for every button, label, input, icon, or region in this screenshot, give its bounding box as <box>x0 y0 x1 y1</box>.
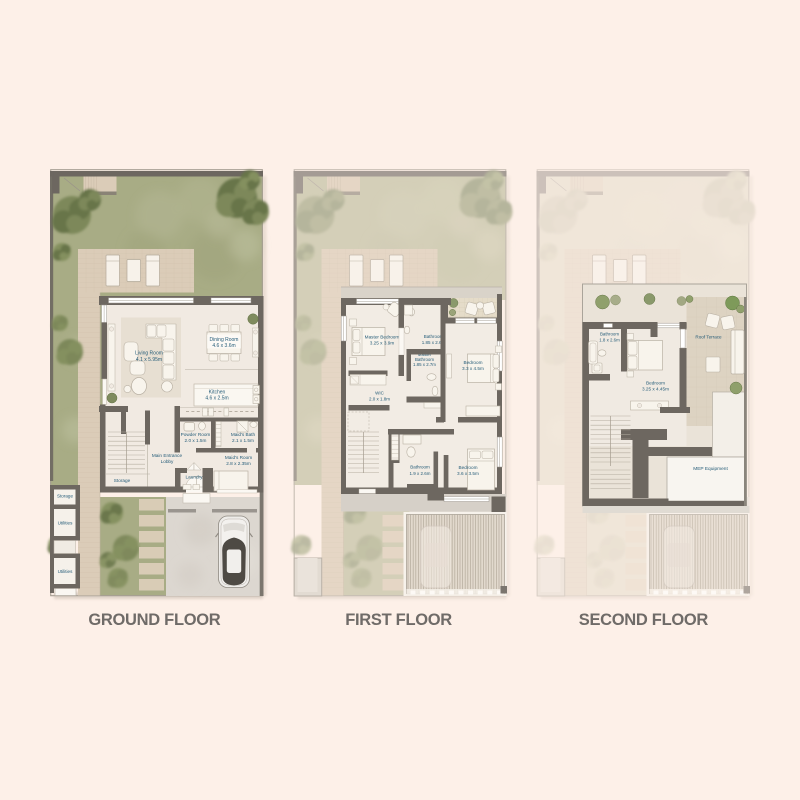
svg-text:Utilities: Utilities <box>58 521 74 526</box>
svg-text:Bathroom: Bathroom <box>600 332 619 337</box>
svg-text:2.0 x 1.8m: 2.0 x 1.8m <box>369 397 390 402</box>
svg-text:Laundry: Laundry <box>186 475 204 480</box>
svg-text:2.8 x 2.35m: 2.8 x 2.35m <box>226 461 251 466</box>
svg-text:Storage: Storage <box>57 494 74 499</box>
svg-text:MEP Equipment: MEP Equipment <box>693 466 728 472</box>
svg-text:Powder Room: Powder Room <box>181 432 211 437</box>
svg-text:4.6 x 2.5m: 4.6 x 2.5m <box>205 396 228 402</box>
svg-text:4.1 x 5.95m: 4.1 x 5.95m <box>136 357 162 363</box>
svg-text:Roof Terrace: Roof Terrace <box>695 335 722 340</box>
svg-text:WIC: WIC <box>375 391 384 396</box>
svg-text:Bathroom: Bathroom <box>410 465 430 470</box>
svg-text:1.8 x 2.6m: 1.8 x 2.6m <box>599 338 620 343</box>
svg-text:FIRST FLOOR: FIRST FLOOR <box>345 611 452 629</box>
svg-text:Utilities: Utilities <box>58 569 74 574</box>
svg-text:3.25 x 3.9m: 3.25 x 3.9m <box>370 341 395 346</box>
svg-text:GROUND FLOOR: GROUND FLOOR <box>88 611 220 629</box>
svg-text:3.3 x 4.5m: 3.3 x 4.5m <box>462 366 484 371</box>
svg-text:3.6 x 3.5m: 3.6 x 3.5m <box>457 471 479 476</box>
svg-text:1.9 x 2.6m: 1.9 x 2.6m <box>409 471 430 476</box>
svg-text:4.6 x 3.6m: 4.6 x 3.6m <box>212 343 235 349</box>
svg-text:Main Entrance: Main Entrance <box>152 453 183 458</box>
svg-text:Maid's Room: Maid's Room <box>225 455 252 460</box>
svg-text:1.85 x 2.7m: 1.85 x 2.7m <box>413 362 436 367</box>
svg-text:Storage: Storage <box>114 478 131 483</box>
svg-text:Bedroom: Bedroom <box>646 381 665 386</box>
svg-text:3.25 x 4.45m: 3.25 x 4.45m <box>642 387 669 392</box>
svg-text:SECOND FLOOR: SECOND FLOOR <box>579 611 709 629</box>
svg-text:Lobby: Lobby <box>161 459 174 464</box>
svg-text:Bedroom: Bedroom <box>458 465 477 470</box>
svg-text:Maid's Bath: Maid's Bath <box>231 432 256 437</box>
svg-text:Bedroom: Bedroom <box>463 360 482 365</box>
svg-text:2.1 x 1.5m: 2.1 x 1.5m <box>232 438 254 443</box>
svg-text:Master Bedroom: Master Bedroom <box>365 335 400 340</box>
svg-text:2.0 x 1.5m: 2.0 x 1.5m <box>185 438 207 443</box>
svg-text:Living Room: Living Room <box>135 351 163 357</box>
